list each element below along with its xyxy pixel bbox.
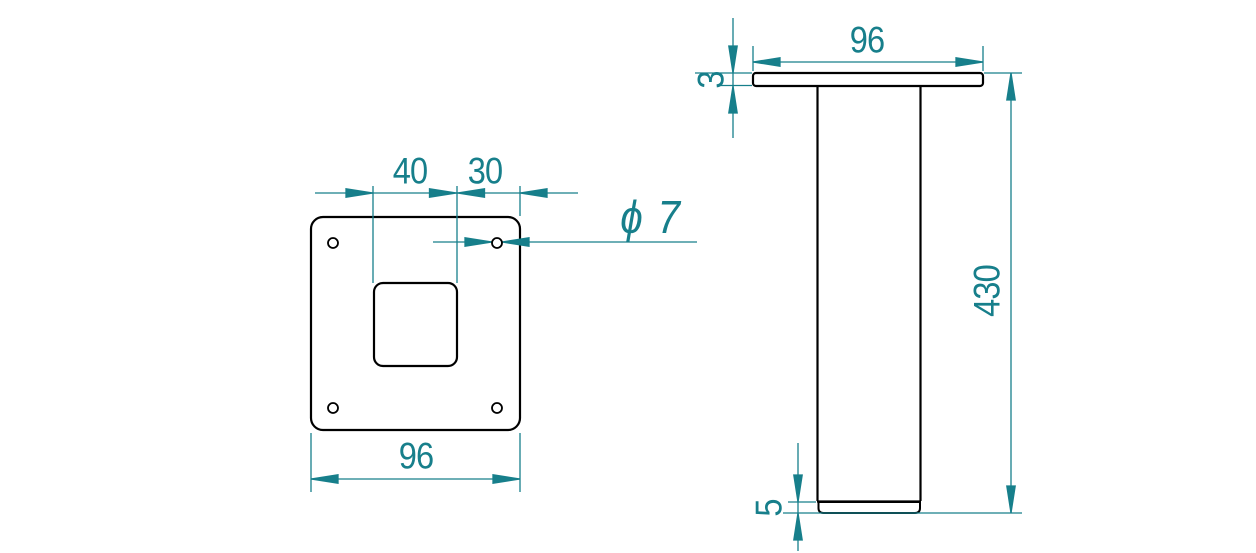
dim-label-plate-width-top-view: 96 <box>399 438 433 475</box>
mounting-hole-bottom-right <box>492 403 502 413</box>
dim-label-edge-offset: 30 <box>468 153 502 190</box>
side-view <box>753 73 983 513</box>
arrowhead <box>311 475 338 483</box>
arrowhead <box>729 46 737 73</box>
arrowhead <box>520 189 547 197</box>
arrowhead <box>1007 73 1015 100</box>
dim-label-plate-thickness: 3 <box>693 71 730 88</box>
mounting-hole-top-right <box>492 238 502 248</box>
foot-outline <box>819 502 921 513</box>
arrowhead <box>346 189 373 197</box>
arrowhead <box>493 475 520 483</box>
mounting-hole-bottom-left <box>328 403 338 413</box>
arrowhead <box>729 86 737 113</box>
arrowhead <box>430 189 457 197</box>
arrowhead <box>794 513 802 540</box>
arrowhead <box>753 58 780 66</box>
hole-diameter-label: ϕ 7 <box>620 194 682 240</box>
top-view <box>311 217 520 430</box>
arrowhead <box>1007 486 1015 513</box>
center-square-outline <box>374 283 457 366</box>
drawing-geometry <box>0 0 1256 553</box>
dim-label-plate-width-side-view: 96 <box>850 22 884 59</box>
dim-label-leg-length: 430 <box>969 265 1006 317</box>
arrowhead <box>956 58 983 66</box>
dim-label-foot-height: 5 <box>751 499 788 516</box>
technical-drawing-canvas: 40 30 ϕ 7 96 96 3 430 5 <box>0 0 1256 553</box>
mounting-hole-top-left <box>328 238 338 248</box>
plate-edge-outline <box>753 73 983 86</box>
dim-label-square-offset: 40 <box>393 153 427 190</box>
arrowhead <box>794 475 802 502</box>
